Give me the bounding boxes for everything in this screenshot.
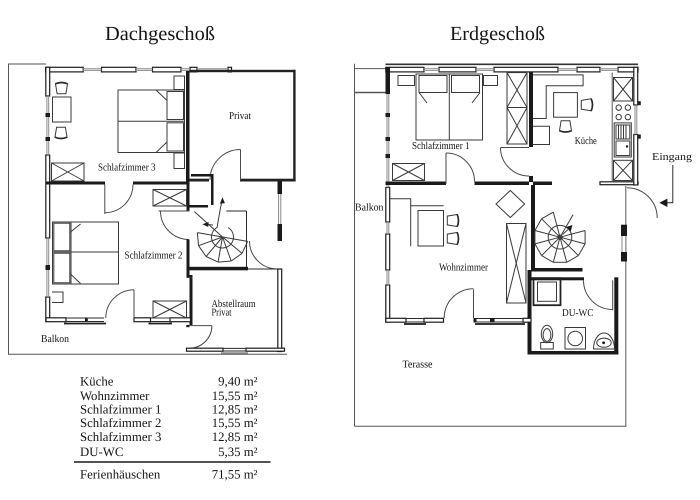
svg-text:Privat: Privat [229, 111, 251, 122]
svg-text:9,40 m²: 9,40 m² [218, 375, 258, 389]
svg-text:DU-WC: DU-WC [80, 445, 123, 459]
svg-text:Dachgeschoß: Dachgeschoß [105, 23, 215, 45]
svg-text:5,35 m²: 5,35 m² [218, 445, 258, 459]
svg-text:Schlafzimmer 3: Schlafzimmer 3 [98, 162, 156, 173]
svg-text:Ferienhäuschen: Ferienhäuschen [80, 468, 161, 482]
svg-text:DU-WC: DU-WC [562, 308, 594, 319]
svg-text:15,55 m²: 15,55 m² [212, 389, 258, 403]
svg-text:Wohnzimmer: Wohnzimmer [439, 262, 488, 273]
svg-text:Küche: Küche [575, 136, 597, 147]
svg-text:Balkon: Balkon [41, 334, 70, 345]
svg-text:Küche: Küche [80, 375, 114, 389]
svg-text:Balkon: Balkon [355, 203, 384, 214]
svg-text:12,85 m²: 12,85 m² [212, 402, 258, 416]
svg-text:Schlafzimmer 1: Schlafzimmer 1 [412, 141, 470, 152]
svg-text:71,55 m²: 71,55 m² [212, 468, 258, 482]
svg-text:Schlafzimmer 2: Schlafzimmer 2 [80, 416, 161, 430]
svg-text:Eingang: Eingang [652, 152, 693, 163]
svg-text:Terasse: Terasse [403, 360, 433, 371]
svg-text:Wohnzimmer: Wohnzimmer [80, 389, 150, 403]
svg-text:Schlafzimmer 1: Schlafzimmer 1 [80, 402, 161, 416]
svg-text:15,55 m²: 15,55 m² [212, 416, 258, 430]
svg-text:12,85 m²: 12,85 m² [212, 430, 258, 444]
svg-text:Schlafzimmer 2: Schlafzimmer 2 [125, 250, 183, 261]
svg-text:Schlafzimmer 3: Schlafzimmer 3 [80, 430, 161, 444]
svg-text:Privat: Privat [212, 307, 232, 318]
svg-text:Erdgeschoß: Erdgeschoß [450, 23, 545, 45]
